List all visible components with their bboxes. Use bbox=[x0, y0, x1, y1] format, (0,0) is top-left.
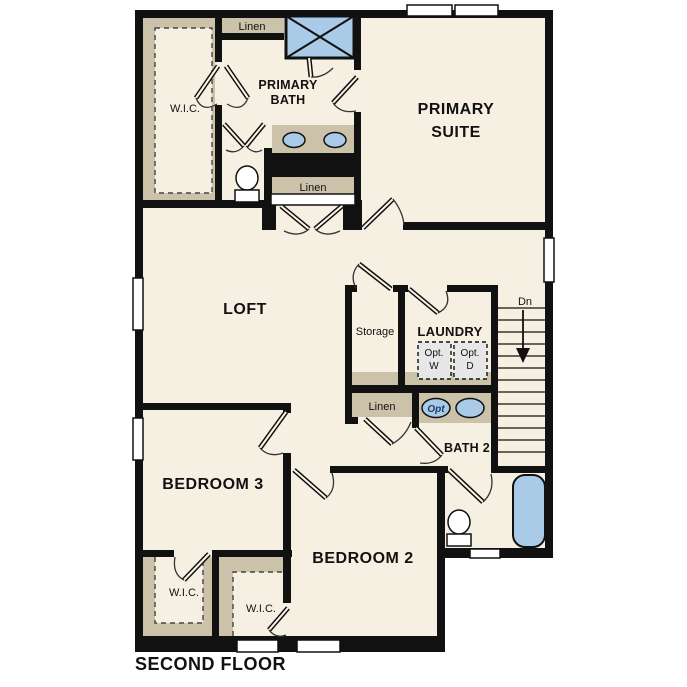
window-stair-landing bbox=[544, 238, 554, 282]
label-primary-suite-line2: SUITE bbox=[431, 124, 481, 141]
window-bottom-1 bbox=[237, 640, 278, 652]
window-bedroom2 bbox=[297, 640, 340, 652]
floor-plan-drawing: W.I.C. Linen PRIMARY BATH PRIMARY SUITE … bbox=[0, 0, 687, 687]
window-bath2 bbox=[470, 549, 500, 558]
shower-icon bbox=[286, 16, 354, 58]
label-opt-sink: Opt bbox=[427, 404, 445, 415]
label-stairs-down: Dn bbox=[518, 296, 532, 308]
label-wic-primary: W.I.C. bbox=[170, 103, 200, 115]
label-opt-dryer-line2: D bbox=[466, 361, 473, 372]
label-wic-bedroom3: W.I.C. bbox=[169, 587, 199, 599]
toilet-bath2-icon bbox=[447, 510, 471, 546]
label-opt-washer-line2: W bbox=[429, 361, 439, 372]
window-suite-1 bbox=[407, 5, 452, 16]
bath2-sink-icon bbox=[456, 399, 484, 418]
label-linen-upper: Linen bbox=[239, 21, 266, 33]
vanity-sink-left-icon bbox=[283, 133, 305, 148]
label-laundry: LAUNDRY bbox=[417, 324, 482, 339]
label-bedroom2: BEDROOM 2 bbox=[312, 550, 413, 567]
label-linen-hall: Linen bbox=[369, 401, 396, 413]
plan-title: SECOND FLOOR bbox=[135, 654, 286, 674]
window-bedroom3 bbox=[133, 418, 143, 460]
label-wic-bedroom2: W.I.C. bbox=[246, 603, 276, 615]
label-bath2: BATH 2 bbox=[444, 441, 490, 455]
linen-primary-door-panel bbox=[271, 194, 355, 205]
label-linen-primary: Linen bbox=[300, 182, 327, 194]
window-suite-2 bbox=[455, 5, 498, 16]
label-primary-suite-line1: PRIMARY bbox=[418, 101, 495, 118]
label-primary-bath-line1: PRIMARY bbox=[258, 78, 318, 92]
vanity-sink-right-icon bbox=[324, 133, 346, 148]
label-bedroom3: BEDROOM 3 bbox=[162, 476, 263, 493]
label-loft: LOFT bbox=[223, 301, 267, 318]
floor-plan-page: W.I.C. Linen PRIMARY BATH PRIMARY SUITE … bbox=[0, 0, 687, 687]
label-primary-bath-line2: BATH bbox=[271, 93, 306, 107]
label-storage: Storage bbox=[356, 326, 395, 338]
toilet-primary-icon bbox=[235, 166, 259, 202]
bathtub-icon bbox=[513, 475, 545, 547]
label-opt-dryer-line1: Opt. bbox=[461, 348, 480, 359]
window-loft bbox=[133, 278, 143, 330]
label-opt-washer-line1: Opt. bbox=[425, 348, 444, 359]
